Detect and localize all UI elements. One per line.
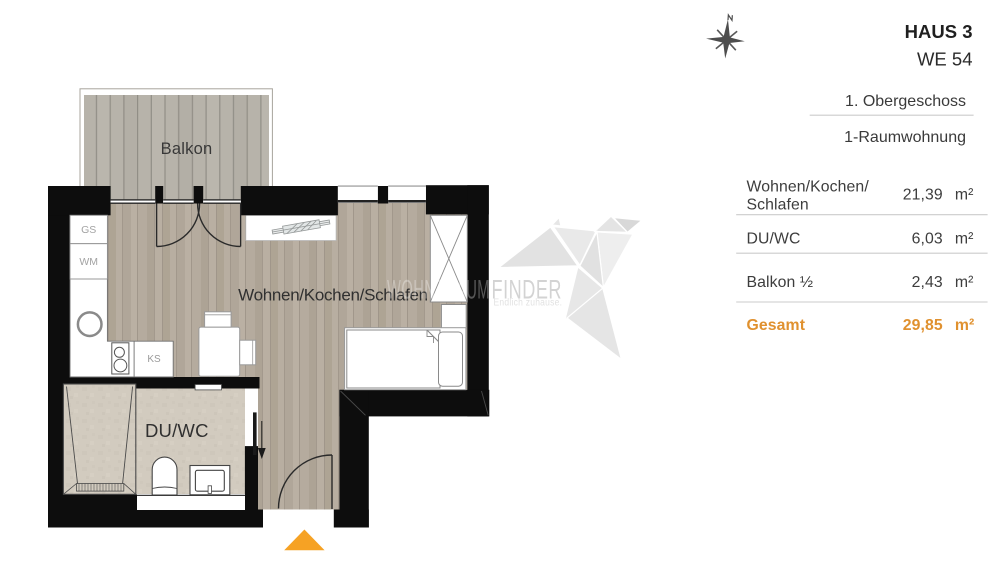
svg-text:m²: m² [955,231,974,248]
svg-text:m²: m² [955,274,974,291]
svg-text:Balkon: Balkon [161,140,213,158]
svg-text:21,39: 21,39 [903,187,943,204]
svg-text:m²: m² [955,187,974,204]
svg-text:Endlich zuhause.: Endlich zuhause. [494,297,563,308]
svg-text:6,03: 6,03 [912,231,943,248]
svg-text:1. Obergeschoss: 1. Obergeschoss [845,93,966,110]
svg-text:m²: m² [955,317,975,334]
svg-text:WM: WM [79,256,98,268]
svg-text:Schlafen: Schlafen [747,197,809,214]
svg-text:Gesamt: Gesamt [747,317,806,334]
svg-text:WE 54: WE 54 [917,49,973,70]
svg-text:KS: KS [147,354,161,365]
svg-text:1-Raumwohnung: 1-Raumwohnung [844,129,966,146]
svg-text:Balkon ½: Balkon ½ [747,274,814,291]
svg-text:GS: GS [81,224,96,236]
svg-text:WOHNTRAUM: WOHNTRAUM [387,274,490,305]
svg-text:HAUS 3: HAUS 3 [905,21,973,42]
svg-text:2,43: 2,43 [912,274,943,291]
svg-text:DU/WC: DU/WC [747,231,801,248]
svg-text:Wohnen/Kochen/: Wohnen/Kochen/ [747,179,870,196]
svg-text:29,85: 29,85 [903,317,943,334]
svg-text:DU/WC: DU/WC [145,420,209,441]
